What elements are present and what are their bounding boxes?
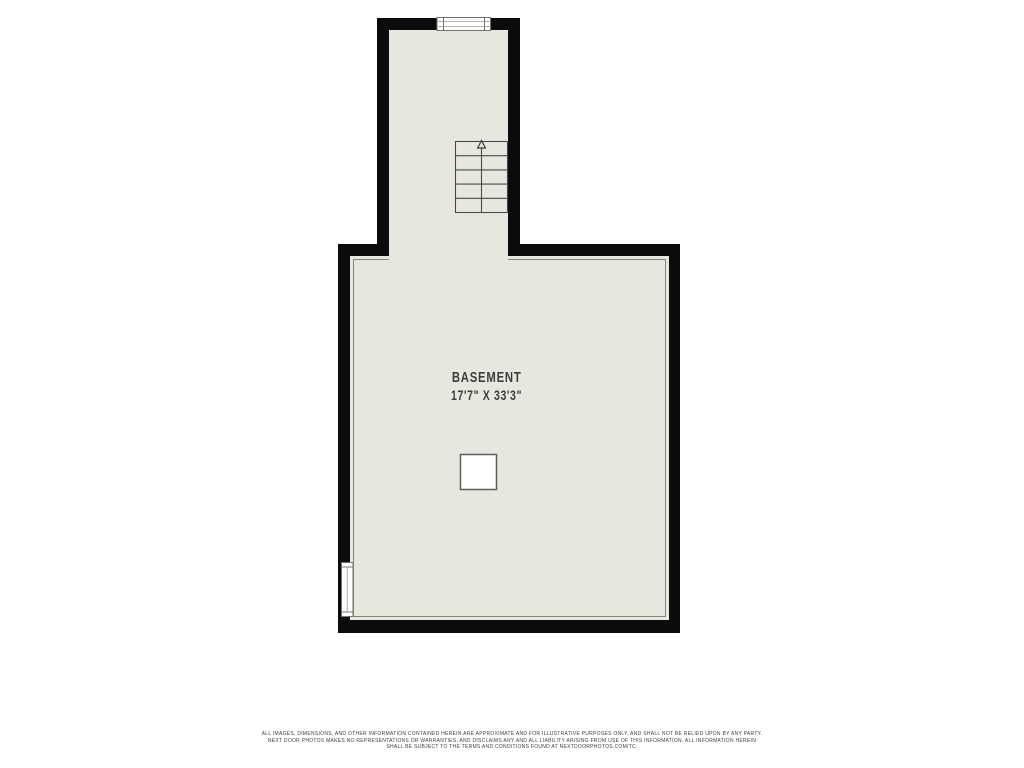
room-label-group: BASEMENT 17'7" X 33'3" [367,369,607,405]
basement-floor [350,256,669,620]
stair-hall-floor [389,30,508,256]
disclaimer-line: NEXT DOOR PHOTOS MAKES NO REPRESENTATION… [0,738,1024,745]
disclaimer-line: ALL IMAGES, DIMENSIONS, AND OTHER INFORM… [0,731,1024,738]
disclaimer-line: SHALL BE SUBJECT TO THE TERMS AND CONDIT… [0,744,1024,751]
room-dimensions: 17'7" X 33'3" [451,388,522,403]
floor-plan-page: BASEMENT 17'7" X 33'3" ALL IMAGES, DIMEN… [0,0,1024,768]
room-label: BASEMENT [452,370,522,386]
disclaimer: ALL IMAGES, DIMENSIONS, AND OTHER INFORM… [0,731,1024,751]
